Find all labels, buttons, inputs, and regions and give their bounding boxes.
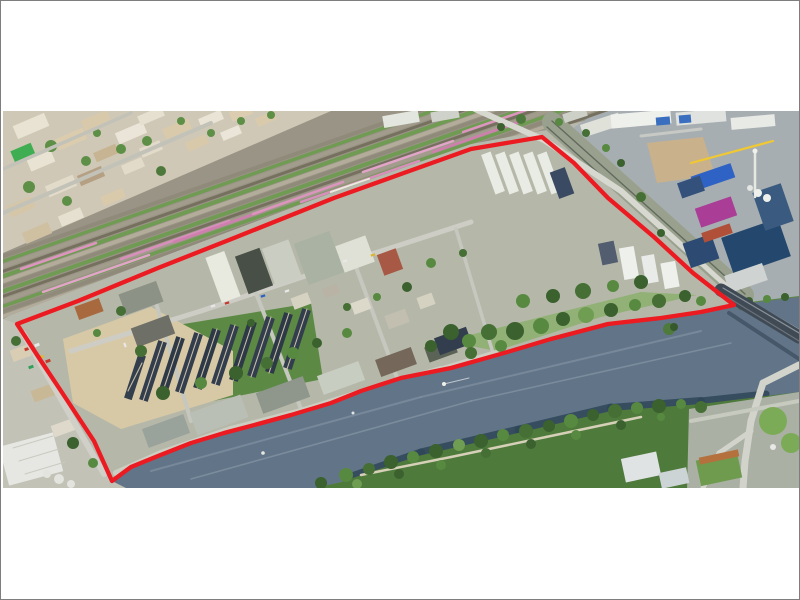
- aerial-figure: [1, 1, 800, 600]
- aerial-photo: [1, 12, 800, 491]
- document-page: [0, 0, 800, 600]
